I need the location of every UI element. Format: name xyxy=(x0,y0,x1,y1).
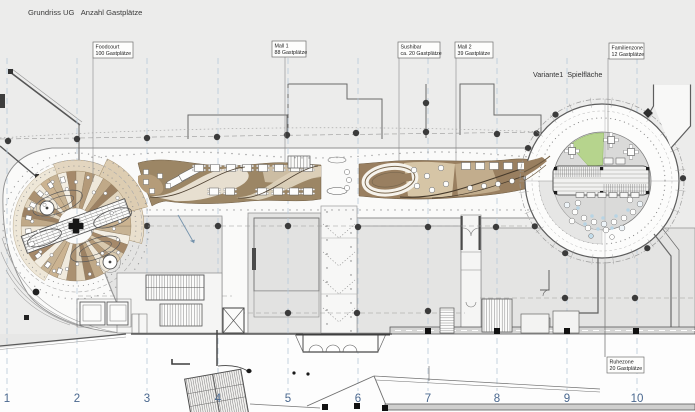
svg-text:20 Gastplätze: 20 Gastplätze xyxy=(610,366,643,372)
svg-text:9: 9 xyxy=(564,393,570,405)
svg-text:88 Gastplätze: 88 Gastplätze xyxy=(275,50,308,56)
svg-text:Ruhezone: Ruhezone xyxy=(610,360,634,366)
svg-text:6: 6 xyxy=(355,393,361,405)
svg-text:Grundriss UG Anzahl Gastplät: Grundriss UG Anzahl Gastplätze xyxy=(28,8,142,17)
svg-text:Mall 2: Mall 2 xyxy=(458,45,472,51)
svg-text:4: 4 xyxy=(215,393,222,405)
svg-text:Familienzone: Familienzone xyxy=(612,46,644,52)
svg-text:Foodcourt: Foodcourt xyxy=(96,45,120,51)
svg-text:1: 1 xyxy=(4,393,10,405)
svg-text:100 Gastplätze: 100 Gastplätze xyxy=(96,51,132,57)
svg-text:Variante1 Spielfläche: Variante1 Spielfläche xyxy=(533,70,602,79)
svg-text:8: 8 xyxy=(494,393,500,405)
svg-text:ca. 20 Gastplätze: ca. 20 Gastplätze xyxy=(401,51,442,57)
svg-text:Sushibar: Sushibar xyxy=(401,45,422,51)
svg-text:12 Gastplätze: 12 Gastplätze xyxy=(612,52,645,58)
svg-text:Mall 1: Mall 1 xyxy=(275,44,289,50)
svg-text:3: 3 xyxy=(144,393,150,405)
svg-text:7: 7 xyxy=(425,393,431,405)
svg-text:10: 10 xyxy=(631,393,644,405)
svg-text:5: 5 xyxy=(285,393,291,405)
svg-text:2: 2 xyxy=(74,393,80,405)
svg-text:39 Gastplätze: 39 Gastplätze xyxy=(458,51,491,57)
